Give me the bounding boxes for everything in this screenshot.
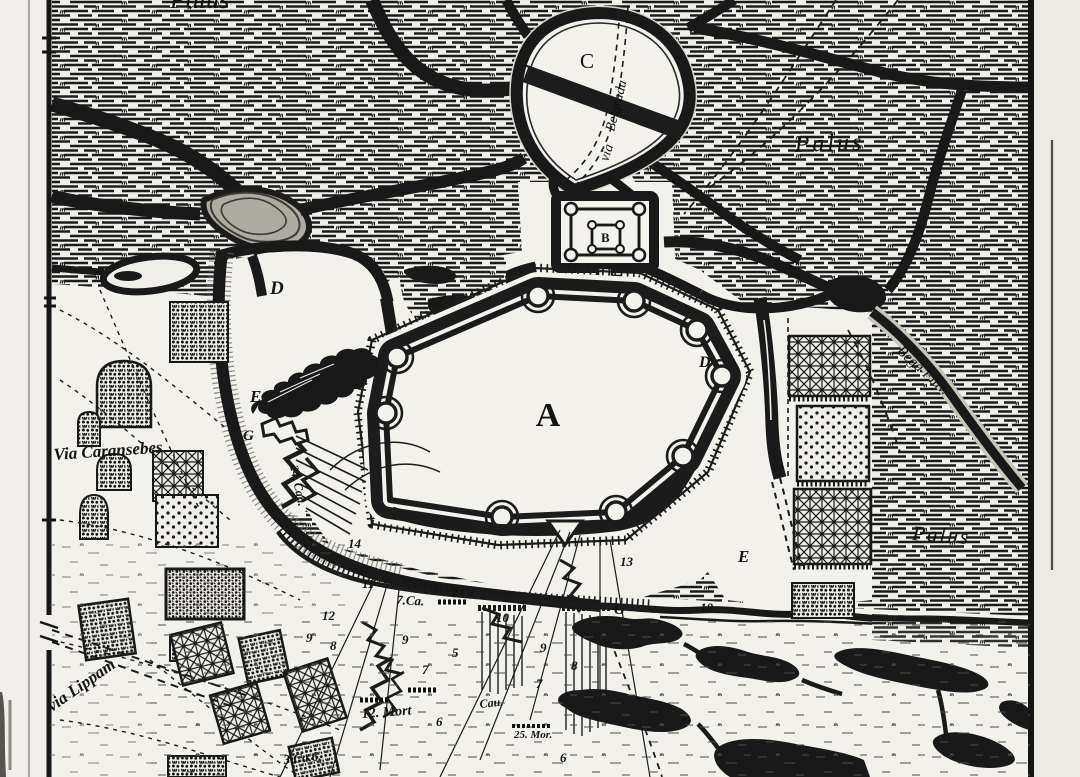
svg-text:9: 9 [402,632,409,647]
svg-text:Palus: Palus [911,521,971,549]
svg-text:7: 7 [422,662,429,677]
svg-text:25. Mor.: 25. Mor. [513,729,552,741]
svg-text:14: 14 [348,536,362,551]
svg-text:D: D [698,354,711,371]
svg-text:E: E [737,547,749,566]
svg-text:B: B [601,230,610,245]
svg-text:7: 7 [536,676,543,691]
svg-text:A: A [536,397,561,434]
svg-text:C: C [580,49,594,73]
svg-text:G: G [614,602,625,618]
svg-text:10: 10 [700,600,714,615]
svg-text:Palus: Palus [793,130,865,158]
svg-text:10: 10 [496,610,510,625]
svg-text:8: 8 [330,638,337,653]
svg-text:9: 9 [540,640,547,655]
svg-text:G: G [243,428,254,444]
svg-text:6: 6 [560,750,567,765]
svg-text:8: 8 [571,658,578,673]
svg-text:13: 13 [620,554,634,569]
svg-text:E: E [249,387,261,406]
svg-text:12: 12 [322,608,336,623]
svg-text:9: 9 [306,630,313,645]
svg-text:Palus: Palus [169,0,229,14]
svg-text:7.Ca.: 7.Ca. [396,592,425,608]
svg-text:2.Ca: 2.Ca [451,587,474,599]
svg-text:D: D [269,278,284,299]
svg-text:5: 5 [452,645,459,660]
svg-text:6: 6 [436,714,443,729]
svg-text:Cau.: Cau. [479,695,504,711]
svg-text:11: 11 [362,576,374,591]
